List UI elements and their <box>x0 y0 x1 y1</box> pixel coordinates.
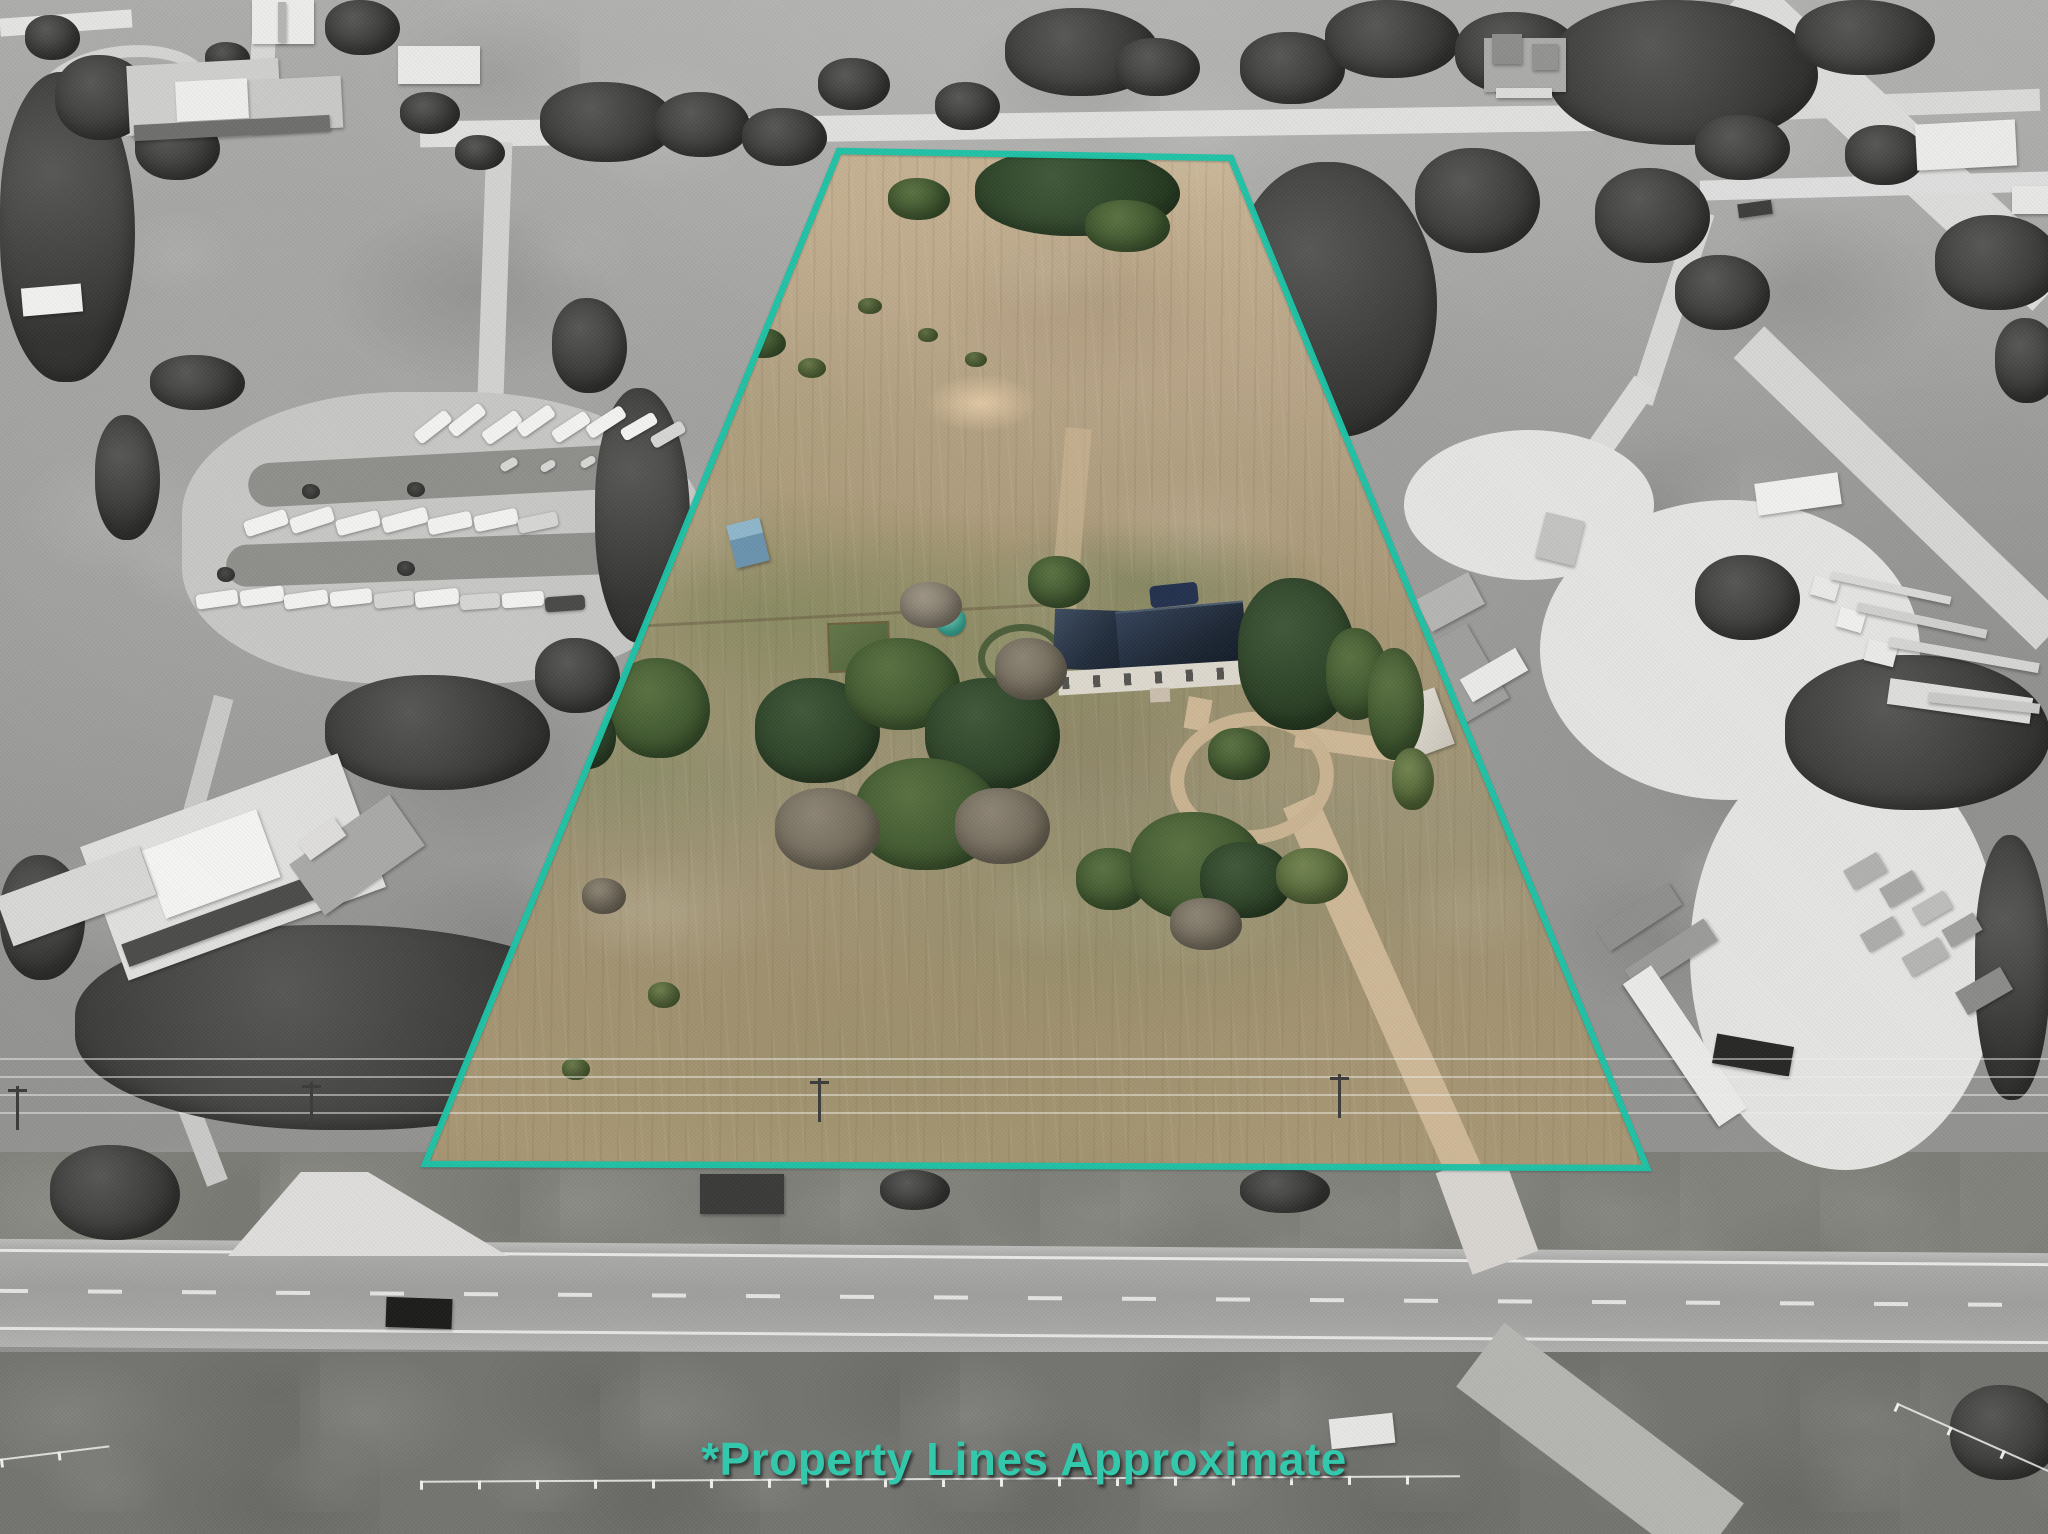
aerial-photo: *Property Lines Approximate <box>0 0 2048 1534</box>
property-boundary-overlay <box>0 0 2048 1534</box>
property-boundary-line <box>425 151 1647 1168</box>
caption-text: *Property Lines Approximate <box>0 1432 2048 1486</box>
